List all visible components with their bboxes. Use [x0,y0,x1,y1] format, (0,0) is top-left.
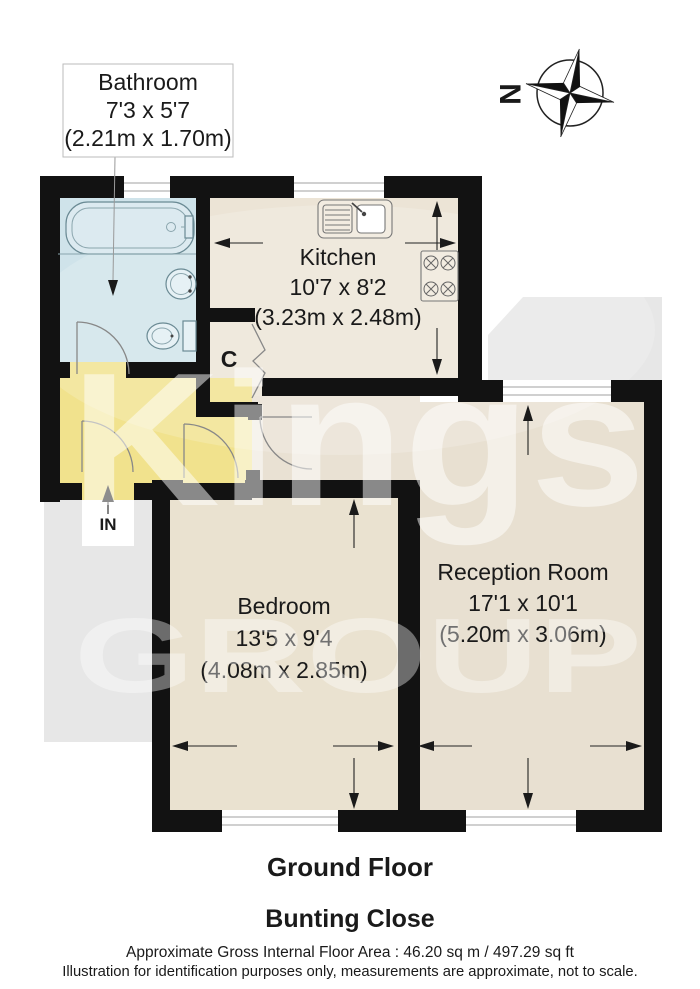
reception-bottom-window [466,810,576,832]
watermark: Kings GROUP [71,334,646,715]
address-title: Bunting Close [265,905,435,933]
bathroom-callout: Bathroom 7'3 x 5'7 (2.21m x 1.70m) [63,64,233,157]
kitchen-size-imperial: 10'7 x 8'2 [289,274,386,300]
compass: N [495,40,624,147]
floor-title: Ground Floor [267,852,433,882]
bathroom-window [124,176,170,198]
wall-bathroom-bottom-left [58,362,70,378]
kitchen-name: Kitchen [300,244,377,270]
disclaimer-text: Illustration for identification purposes… [62,964,637,980]
bathtub-icon [58,202,196,254]
wall-top [40,176,482,198]
watermark-line1: Kings [71,334,646,546]
floor-area-text: Approximate Gross Internal Floor Area : … [126,944,575,961]
wall-cupboard-top [210,308,255,322]
bathroom-name: Bathroom [98,69,198,95]
bathroom-size-metric: (2.21m x 1.70m) [64,125,231,151]
reception-name: Reception Room [437,559,608,585]
floorplan-svg: Kitchen 10'7 x 8'2 (3.23m x 2.48m) Recep… [0,0,700,989]
wall-bottom-middle [338,810,466,832]
wall-left [40,176,60,502]
kitchen-window [294,176,384,198]
wall-right [644,380,662,832]
compass-north-label: N [495,83,528,105]
kitchen-sink-icon [318,200,392,238]
floorplan-page: Kitchen 10'7 x 8'2 (3.23m x 2.48m) Recep… [0,0,700,989]
bedroom-bottom-window [222,810,338,832]
compass-star-icon [517,40,624,147]
wall-bottom-left [152,810,222,832]
bathroom-size-imperial: 7'3 x 5'7 [106,97,190,123]
wall-bottom-right [576,810,662,832]
hob-icon [421,251,458,301]
footer: Ground Floor Bunting Close Approximate G… [62,852,637,980]
bathroom-sink-icon [166,269,196,299]
kitchen-size-metric: (3.23m x 2.48m) [254,304,421,330]
watermark-line2: GROUP [74,597,642,715]
